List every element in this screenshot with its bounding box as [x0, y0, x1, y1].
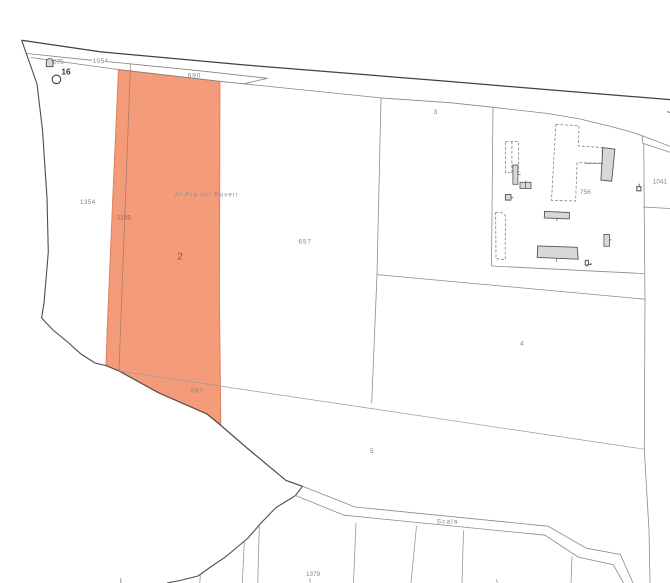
svg-text:3: 3	[434, 109, 438, 116]
svg-text:1109: 1109	[117, 214, 131, 221]
svg-text:690: 690	[188, 73, 202, 80]
svg-text:16: 16	[61, 67, 71, 77]
svg-text:1354: 1354	[80, 199, 96, 206]
svg-text:2: 2	[177, 251, 183, 262]
svg-text:5: 5	[370, 448, 374, 455]
svg-text:756: 756	[580, 189, 591, 196]
svg-text:4: 4	[520, 341, 524, 348]
svg-text:587: 587	[191, 387, 204, 394]
svg-text:1379: 1379	[306, 571, 321, 578]
svg-text:1054: 1054	[93, 58, 109, 65]
svg-text:1041: 1041	[653, 178, 668, 185]
svg-text:Al Pra del Roveri: Al Pra del Roveri	[175, 192, 238, 199]
svg-text:657: 657	[298, 238, 311, 245]
svg-text:Scala: Scala	[437, 518, 459, 525]
